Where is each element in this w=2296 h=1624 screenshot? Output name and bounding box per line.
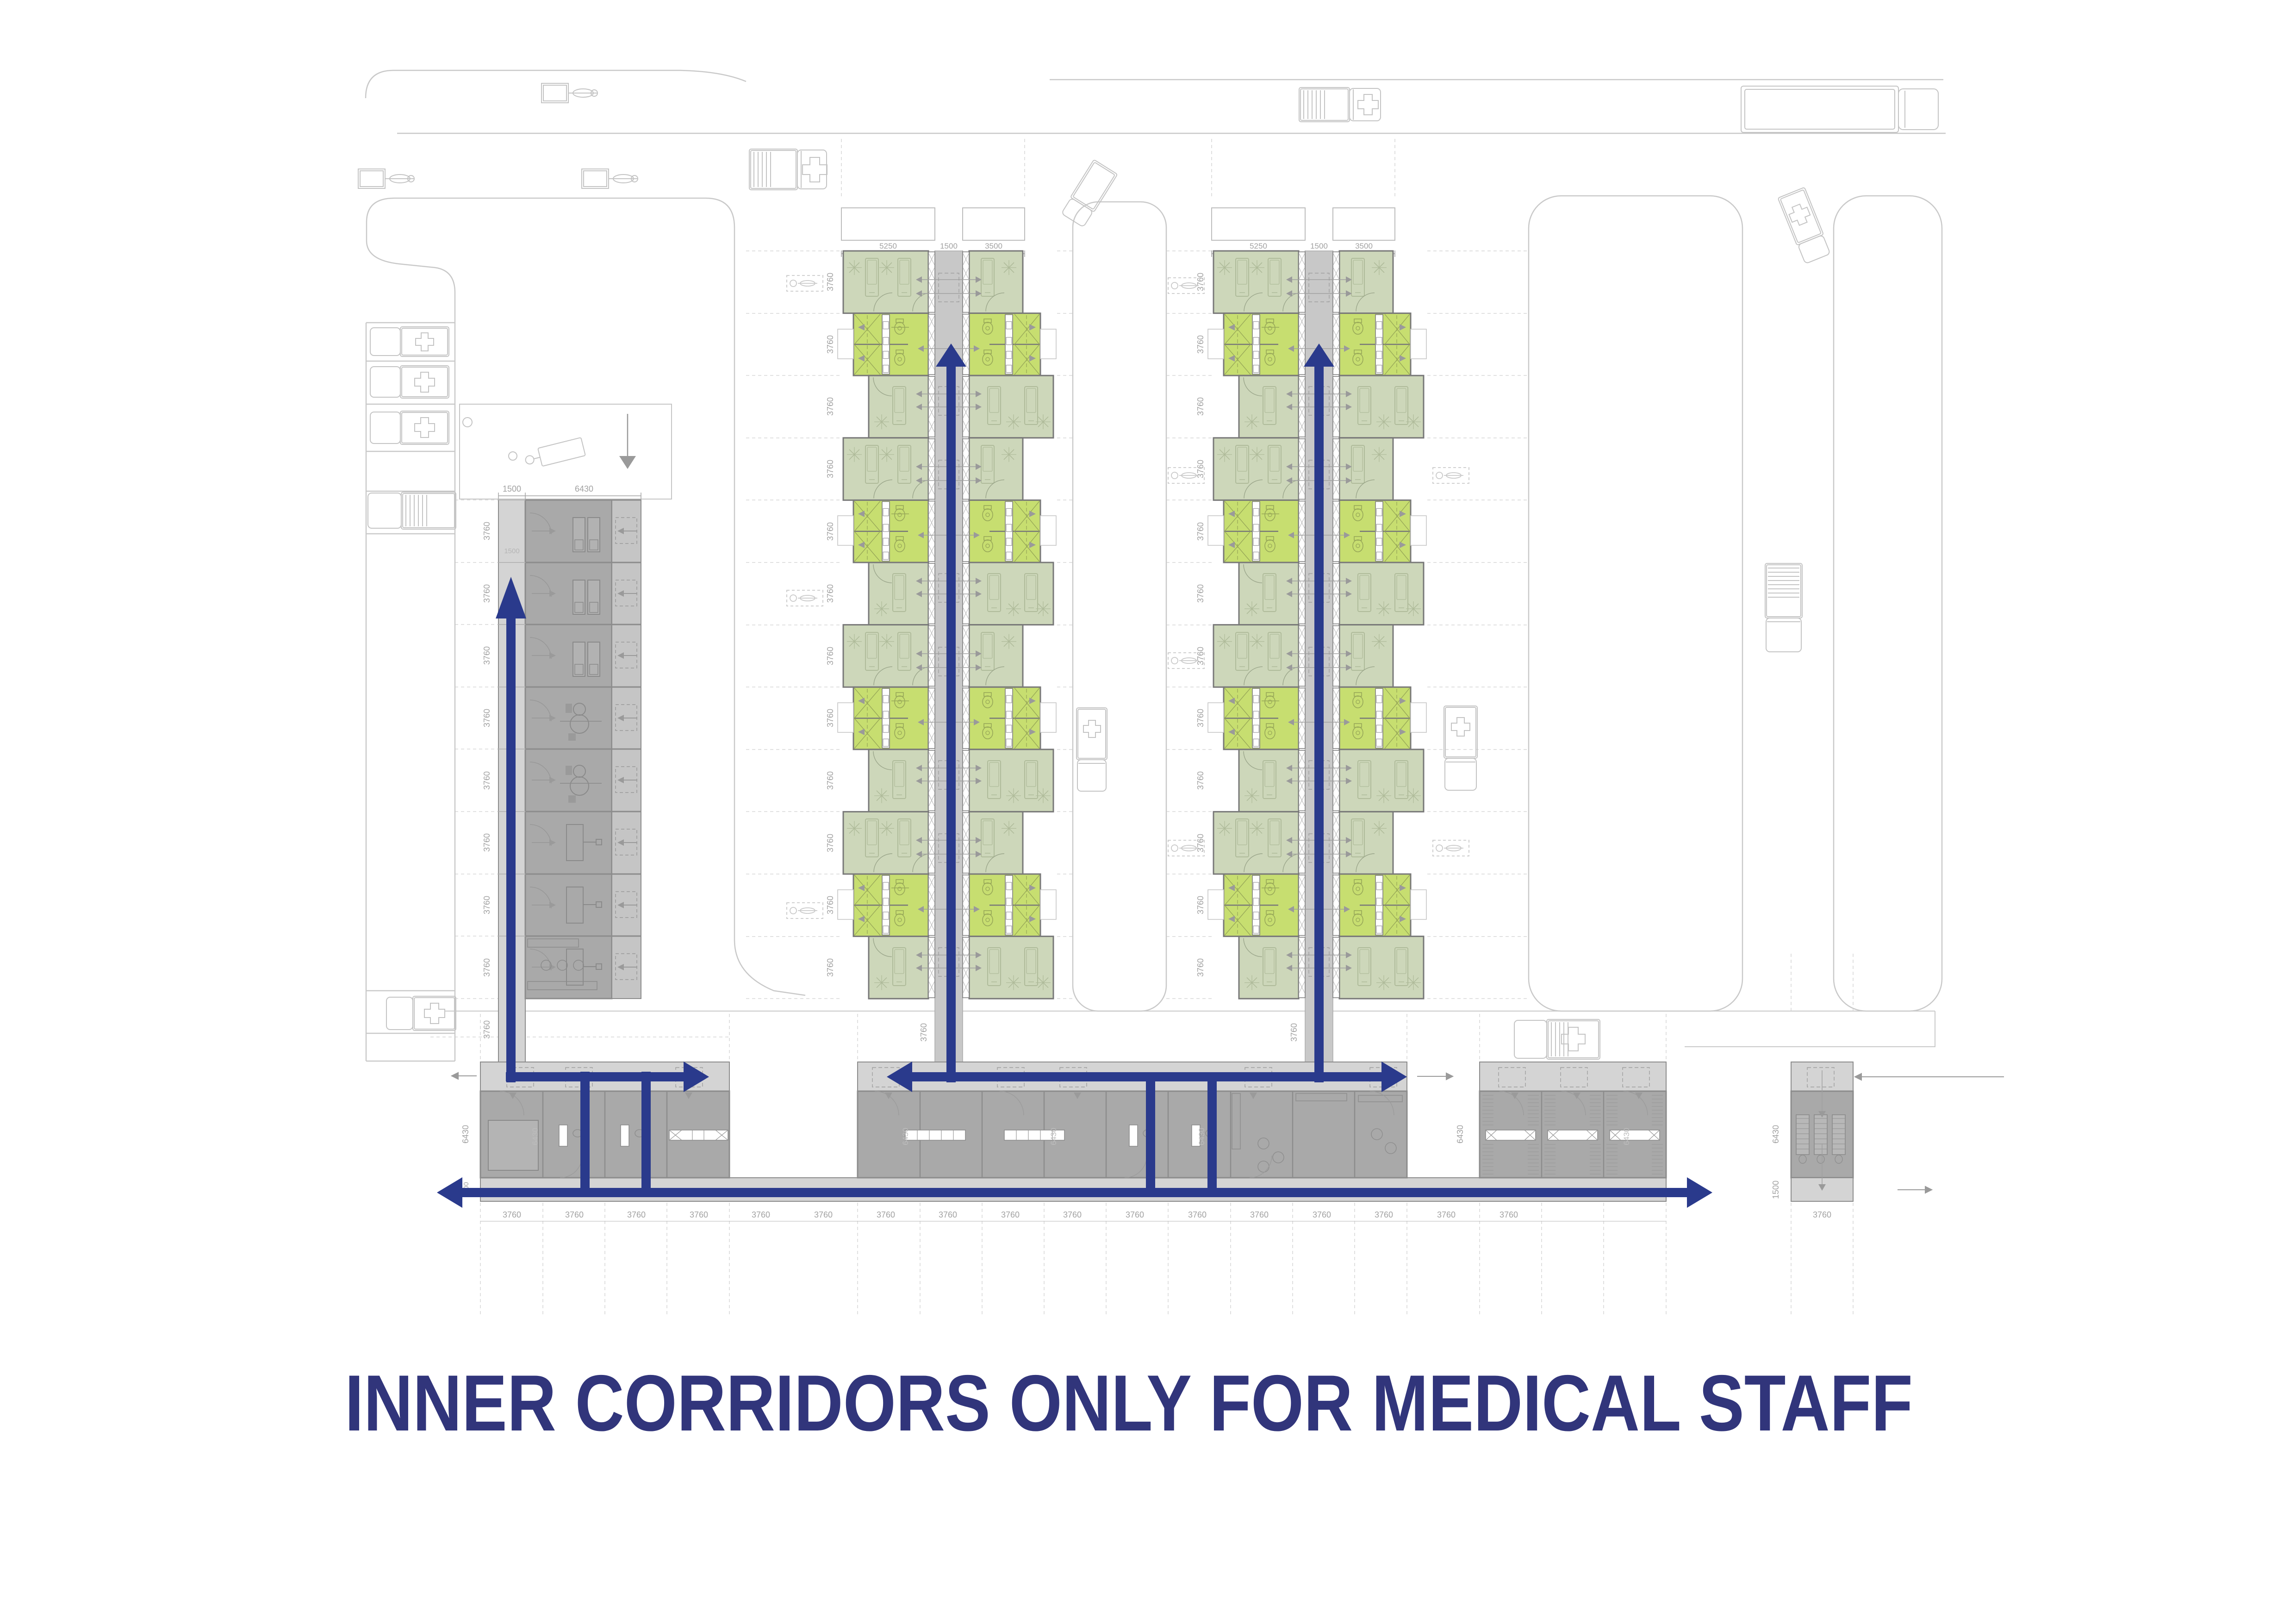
svg-text:3760: 3760: [1196, 771, 1205, 790]
svg-text:3760: 3760: [1196, 647, 1205, 665]
svg-text:3760: 3760: [1813, 1210, 1831, 1219]
svg-text:3760: 3760: [1196, 834, 1205, 852]
svg-text:3760: 3760: [826, 896, 835, 914]
svg-text:5250: 5250: [879, 242, 897, 250]
svg-text:3760: 3760: [1250, 1210, 1269, 1219]
svg-text:3760: 3760: [565, 1210, 584, 1219]
svg-text:1500: 1500: [504, 547, 519, 555]
svg-text:3760: 3760: [482, 646, 492, 665]
svg-text:3760: 3760: [1196, 896, 1205, 914]
svg-text:3760: 3760: [1196, 522, 1205, 541]
svg-text:6430: 6430: [1197, 1128, 1206, 1145]
svg-text:3760: 3760: [826, 584, 835, 603]
svg-text:3760: 3760: [1126, 1210, 1144, 1219]
svg-text:3760: 3760: [826, 834, 835, 852]
svg-text:3760: 3760: [1500, 1210, 1518, 1219]
svg-text:3500: 3500: [1355, 242, 1373, 250]
svg-text:6430: 6430: [461, 1125, 470, 1143]
svg-text:3760: 3760: [1196, 584, 1205, 603]
svg-text:3500: 3500: [985, 242, 1002, 250]
svg-text:3760: 3760: [1289, 1023, 1299, 1042]
svg-text:3760: 3760: [826, 273, 835, 291]
svg-text:3760: 3760: [877, 1210, 895, 1219]
svg-text:3760: 3760: [1063, 1210, 1082, 1219]
svg-text:6430: 6430: [531, 1128, 540, 1145]
svg-text:3760: 3760: [482, 709, 492, 727]
svg-text:3760: 3760: [503, 1210, 521, 1219]
svg-text:3760: 3760: [1196, 335, 1205, 354]
svg-text:3760: 3760: [482, 584, 492, 603]
svg-text:3760: 3760: [482, 522, 492, 540]
svg-text:3760: 3760: [826, 647, 835, 665]
svg-text:1500: 1500: [503, 484, 521, 493]
svg-text:3760: 3760: [752, 1210, 770, 1219]
svg-text:1500: 1500: [940, 242, 958, 250]
svg-text:3760: 3760: [1196, 709, 1205, 727]
svg-text:3760: 3760: [826, 460, 835, 478]
svg-text:3760: 3760: [826, 335, 835, 354]
svg-text:3760: 3760: [1375, 1210, 1393, 1219]
svg-text:3760: 3760: [1313, 1210, 1331, 1219]
svg-text:3760: 3760: [939, 1210, 957, 1219]
svg-text:3760: 3760: [826, 958, 835, 977]
svg-text:3760: 3760: [919, 1023, 928, 1042]
svg-text:6430: 6430: [1622, 1128, 1631, 1145]
svg-text:INNER CORRIDORS ONLY FOR MEDIC: INNER CORRIDORS ONLY FOR MEDICAL STAFF: [345, 1359, 1913, 1448]
svg-text:3760: 3760: [627, 1210, 646, 1219]
svg-text:3760: 3760: [482, 771, 492, 790]
svg-text:3760: 3760: [826, 771, 835, 790]
svg-text:6430: 6430: [1456, 1125, 1465, 1143]
svg-text:3760: 3760: [1196, 273, 1205, 291]
svg-text:5250: 5250: [1250, 242, 1267, 250]
svg-text:3760: 3760: [482, 896, 492, 914]
svg-text:3760: 3760: [1437, 1210, 1456, 1219]
svg-text:6430: 6430: [1771, 1125, 1780, 1143]
svg-text:1500: 1500: [1310, 242, 1328, 250]
svg-text:3760: 3760: [1188, 1210, 1207, 1219]
svg-text:3760: 3760: [1196, 397, 1205, 416]
svg-text:3760: 3760: [482, 958, 492, 977]
svg-text:3760: 3760: [826, 709, 835, 727]
svg-text:1500: 1500: [1771, 1181, 1780, 1199]
svg-text:3760: 3760: [826, 522, 835, 541]
svg-text:3760: 3760: [1196, 958, 1205, 977]
svg-text:3760: 3760: [814, 1210, 833, 1219]
svg-text:3760: 3760: [482, 1020, 492, 1039]
svg-text:6430: 6430: [1049, 1128, 1058, 1145]
svg-text:6430: 6430: [901, 1128, 910, 1145]
svg-text:3760: 3760: [826, 397, 835, 416]
svg-text:3760: 3760: [1001, 1210, 1020, 1219]
svg-text:3760: 3760: [482, 833, 492, 852]
svg-text:6430: 6430: [575, 484, 593, 493]
svg-text:3760: 3760: [690, 1210, 708, 1219]
